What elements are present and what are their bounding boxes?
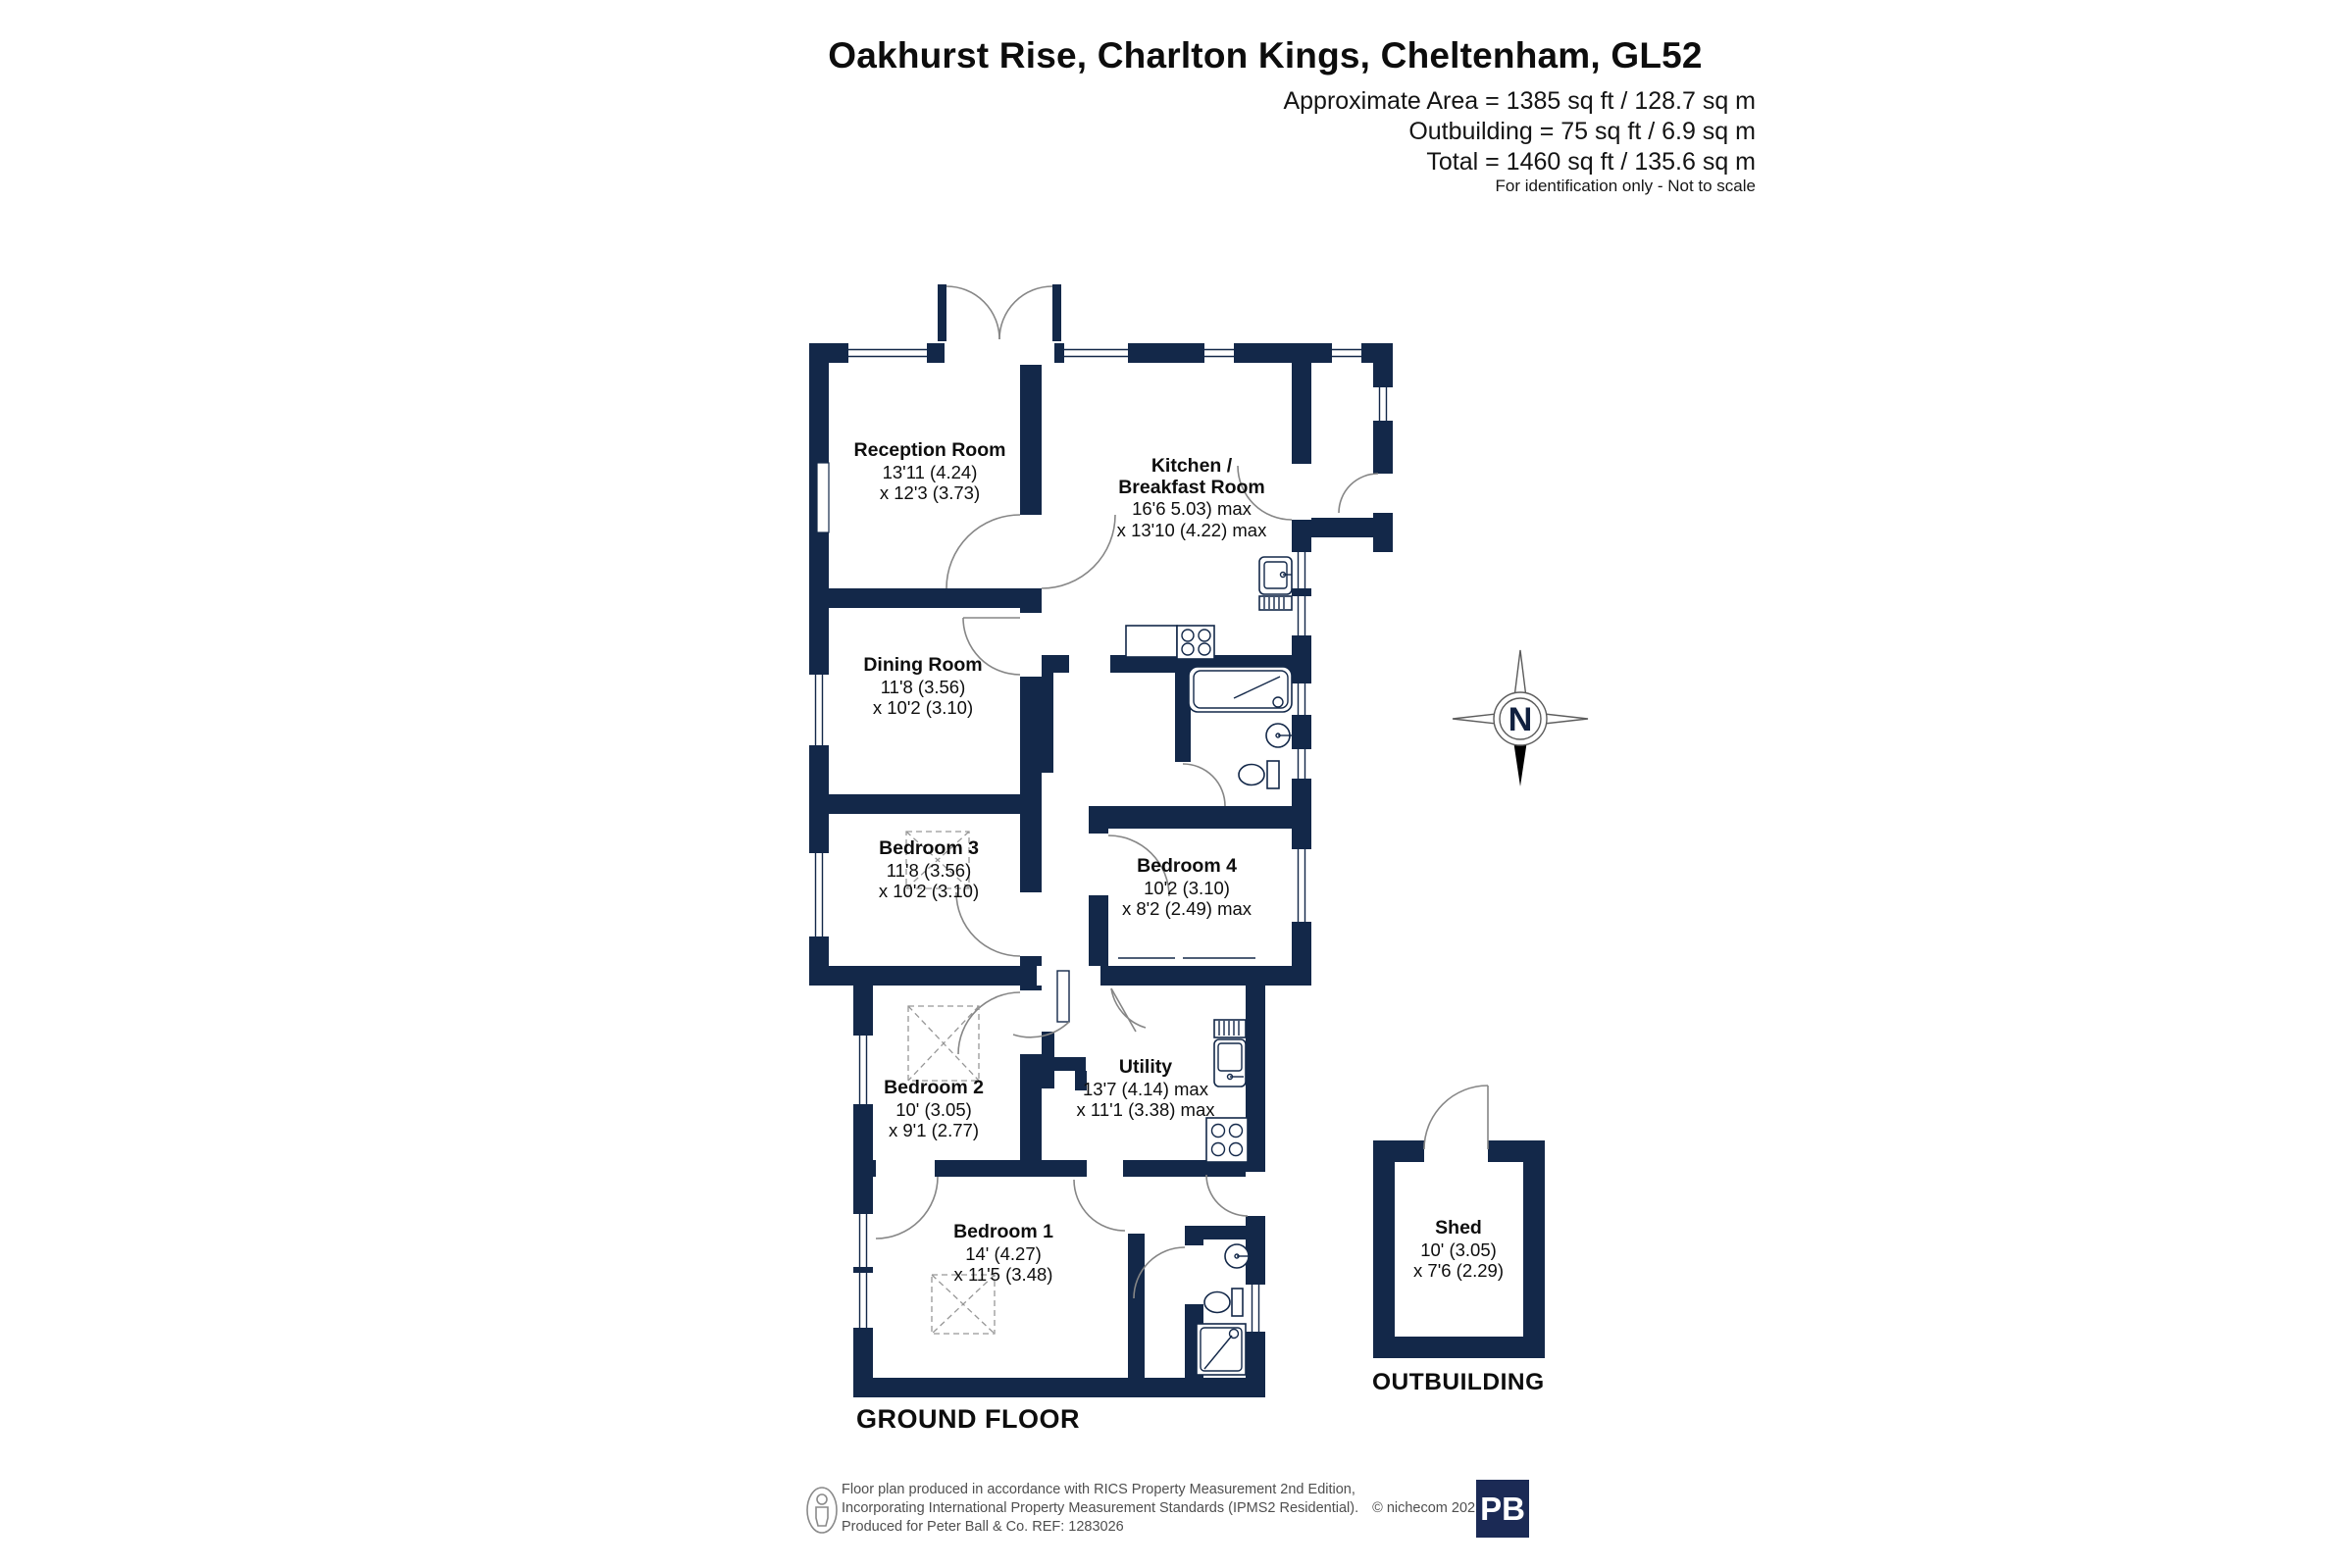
sink-icon [1214,1020,1246,1087]
room-dim: 11'8 (3.56) [879,859,979,881]
person-icon [807,1488,837,1533]
footer-line-1: Floor plan produced in accordance with R… [842,1481,1528,1499]
room-name: Breakfast Room [1117,478,1267,499]
room-dim: x 11'1 (3.38) max [1077,1099,1215,1121]
room-dim: 11'8 (3.56) [863,676,982,697]
room-name: Bedroom 1 [953,1222,1053,1243]
room-label-bedroom-3: Bedroom 3 11'8 (3.56) x 10'2 (3.10) [879,838,979,902]
room-dim: x 11'5 (3.48) [953,1264,1053,1286]
room-dim: x 7'6 (2.29) [1413,1260,1504,1282]
room-dim: x 13'10 (4.22) max [1117,520,1267,541]
footer-copyright: © nichecom 2025. [1372,1500,1487,1516]
room-dim: 13'11 (4.24) [854,461,1006,482]
basin-icon [1266,724,1292,747]
room-name: Dining Room [863,655,982,677]
room-name: Bedroom 3 [879,838,979,860]
footer-line-3: Produced for Peter Ball & Co. REF: 12830… [842,1518,1528,1537]
floor-plan-canvas: N [0,0,2352,1568]
room-name: Utility [1077,1057,1215,1079]
footer-disclaimer: Floor plan produced in accordance with R… [842,1481,1528,1537]
room-dim: 16'6 5.03) max [1117,498,1267,520]
room-dim: 10' (3.05) [884,1098,984,1120]
room-label-reception: Reception Room 13'11 (4.24) x 12'3 (3.73… [854,440,1006,504]
room-dim: 14' (4.27) [953,1242,1053,1264]
hob-icon [1126,626,1214,659]
room-label-bedroom-1: Bedroom 1 14' (4.27) x 11'5 (3.48) [953,1222,1053,1286]
room-dim: 10' (3.05) [1413,1239,1504,1260]
room-label-dining: Dining Room 11'8 (3.56) x 10'2 (3.10) [863,655,982,719]
room-dim: x 9'1 (2.77) [884,1120,984,1141]
outbuilding-label: OUTBUILDING [1372,1369,1545,1396]
bath-icon [1189,667,1292,712]
room-label-bedroom-4: Bedroom 4 10'2 (3.10) x 8'2 (2.49) max [1122,856,1252,920]
room-label-kitchen: Kitchen / Breakfast Room 16'6 5.03) max … [1117,456,1267,540]
floor-label: GROUND FLOOR [856,1404,1080,1435]
room-dim: x 8'2 (2.49) max [1122,898,1252,920]
room-name: Shed [1413,1218,1504,1239]
room-dim: 10'2 (3.10) [1122,877,1252,898]
room-name: Bedroom 2 [884,1078,984,1099]
room-label-shed: Shed 10' (3.05) x 7'6 (2.29) [1413,1218,1504,1282]
room-dim: x 10'2 (3.10) [879,881,979,902]
room-dim: 13'7 (4.14) max [1077,1078,1215,1099]
room-name: Reception Room [854,440,1006,462]
room-dim: x 12'3 (3.73) [854,482,1006,504]
compass-north-label: N [1508,701,1533,738]
room-label-utility: Utility 13'7 (4.14) max x 11'1 (3.38) ma… [1077,1057,1215,1121]
shower-icon [1197,1324,1246,1375]
footer-line-2: Incorporating International Property Mea… [842,1499,1528,1518]
compass-rose-icon: N [1453,650,1588,786]
room-name: Kitchen / [1117,456,1267,478]
footer-standards-text: Incorporating International Property Mea… [842,1500,1358,1516]
floor-plan-page: Oakhurst Rise, Charlton Kings, Cheltenha… [0,0,2352,1568]
hob-icon [1206,1118,1248,1162]
pb-logo: PB [1476,1480,1529,1538]
toilet-icon [1204,1289,1243,1316]
room-name: Bedroom 4 [1122,856,1252,878]
sink-icon [1259,557,1292,610]
toilet-icon [1239,761,1279,788]
room-label-bedroom-2: Bedroom 2 10' (3.05) x 9'1 (2.77) [884,1078,984,1141]
room-dim: x 10'2 (3.10) [863,697,982,719]
wall-recess [817,463,829,532]
